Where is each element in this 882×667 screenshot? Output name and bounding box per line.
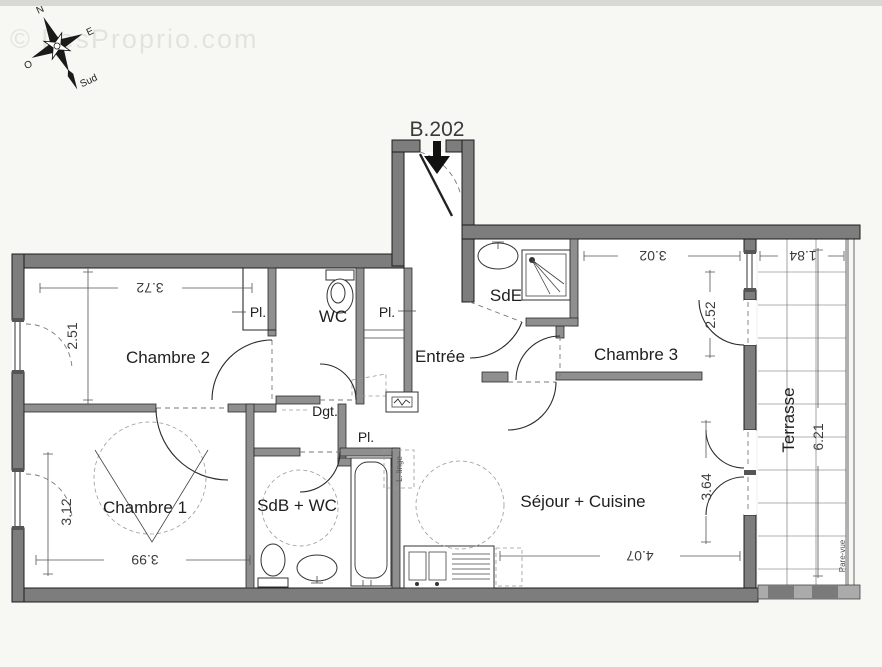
- room-label-terrasse: Terrasse: [779, 387, 798, 452]
- dim-terrasse-width: 1.84: [789, 248, 816, 264]
- closet-label-chambre2: Pl.: [250, 304, 266, 320]
- wall-right-d: [744, 515, 756, 588]
- wall-right-c: [744, 345, 756, 430]
- wall-wc-right: [356, 268, 364, 404]
- wall-corridor-left: [392, 140, 404, 266]
- room-label-dgt: Dgt.: [312, 403, 338, 419]
- dim-terrasse-depth: 6.21: [810, 423, 826, 450]
- dim-sejour-width: 4.07: [626, 548, 653, 564]
- dim-chambre1-depth: 3.12: [58, 498, 74, 525]
- compass-rose-icon: N E O Sud: [4, 0, 115, 108]
- wall-left-c: [12, 528, 24, 602]
- closet-label-dgt: Pl.: [358, 429, 374, 445]
- wall-chambre3-bottom: [556, 372, 702, 380]
- electrical-panel-icon: [386, 392, 418, 412]
- window-cap: [12, 468, 24, 472]
- pare-vue-label: Pare-vue: [838, 539, 847, 572]
- window-cap: [12, 526, 24, 530]
- wc-toilet-inner: [331, 283, 345, 303]
- room-label-chambre1: Chambre 1: [103, 498, 187, 517]
- bathtub-fixture: [351, 458, 391, 586]
- dim-chambre2-depth: 2.51: [64, 322, 80, 349]
- closet-label-entree: Pl.: [379, 304, 395, 320]
- wall-sde-bottom: [526, 318, 578, 326]
- wall-sdb-top-left: [254, 448, 300, 456]
- floor-areas: [24, 152, 846, 588]
- room-label-sdb: SdB + WC: [257, 496, 337, 515]
- window-chambre2-gap: [12, 320, 24, 372]
- terrace-railing: [846, 239, 854, 597]
- unit-label: B.202: [410, 118, 465, 141]
- window-cap: [744, 250, 756, 254]
- corridor-floor: [404, 152, 462, 272]
- wall-top-left: [12, 254, 404, 268]
- window-chambre3-gap: [744, 252, 756, 290]
- dim-chambre2-width: 3.72: [136, 280, 163, 296]
- window-chambre1-gap: [12, 470, 24, 528]
- wall-chambre2-wc: [268, 268, 276, 336]
- sdb-toilet-bowl: [261, 544, 285, 576]
- dim-chambre3-width: 3.02: [639, 248, 666, 264]
- compass-south-label: Sud: [79, 73, 100, 90]
- room-label-chambre3: Chambre 3: [594, 345, 678, 364]
- terrace-bottom-wall-seg1: [768, 585, 794, 599]
- wall-bottom: [12, 588, 758, 602]
- floorplan-page: © LesProprio.com N E O Sud: [0, 0, 882, 667]
- wall-placard-right: [404, 268, 412, 404]
- window-cap: [744, 288, 756, 292]
- wall-sdb-top-right: [340, 448, 398, 456]
- wall-chambre1-top-left: [24, 404, 156, 412]
- room-label-sejour: Séjour + Cuisine: [520, 492, 645, 511]
- entry-arrow-shaft: [433, 141, 441, 156]
- window-cap: [12, 370, 24, 374]
- kitchen-tap-2: [435, 582, 439, 586]
- dim-sejour-depth: 3.64: [698, 473, 714, 500]
- kitchen-tap-1: [415, 582, 419, 586]
- door-terrace-ch3-gap: [744, 300, 756, 345]
- dim-chambre1-width: 3.99: [131, 552, 158, 568]
- door-terrace-sejour-post: [744, 470, 756, 475]
- room-label-entree: Entrée: [415, 347, 465, 366]
- wall-corridor-right: [462, 140, 474, 302]
- window-cap: [12, 318, 24, 322]
- floor-plan-svg: © LesProprio.com N E O Sud: [0, 0, 882, 667]
- dim-chambre3-depth: 2.52: [702, 301, 718, 328]
- shower-fixture: [522, 250, 570, 300]
- wall-left-a: [12, 254, 24, 320]
- wall-sejour-stub: [482, 372, 508, 382]
- wall-sde-right: [570, 239, 578, 326]
- room-label-wc: WC: [319, 307, 347, 326]
- sdb-toilet-tank: [258, 578, 288, 587]
- wall-top-right: [462, 225, 860, 239]
- wall-corridor-stub-left: [392, 140, 420, 152]
- scan-edge-artifact: [0, 0, 882, 6]
- room-label-chambre2: Chambre 2: [126, 348, 210, 367]
- lave-linge-label: L. linge: [395, 456, 404, 482]
- terrace-floor: [758, 239, 846, 585]
- room-label-sde: SdE: [490, 286, 522, 305]
- wall-left-b: [12, 372, 24, 470]
- terrace-bottom-wall-seg2: [812, 585, 838, 599]
- compass-west-label: O: [23, 59, 35, 72]
